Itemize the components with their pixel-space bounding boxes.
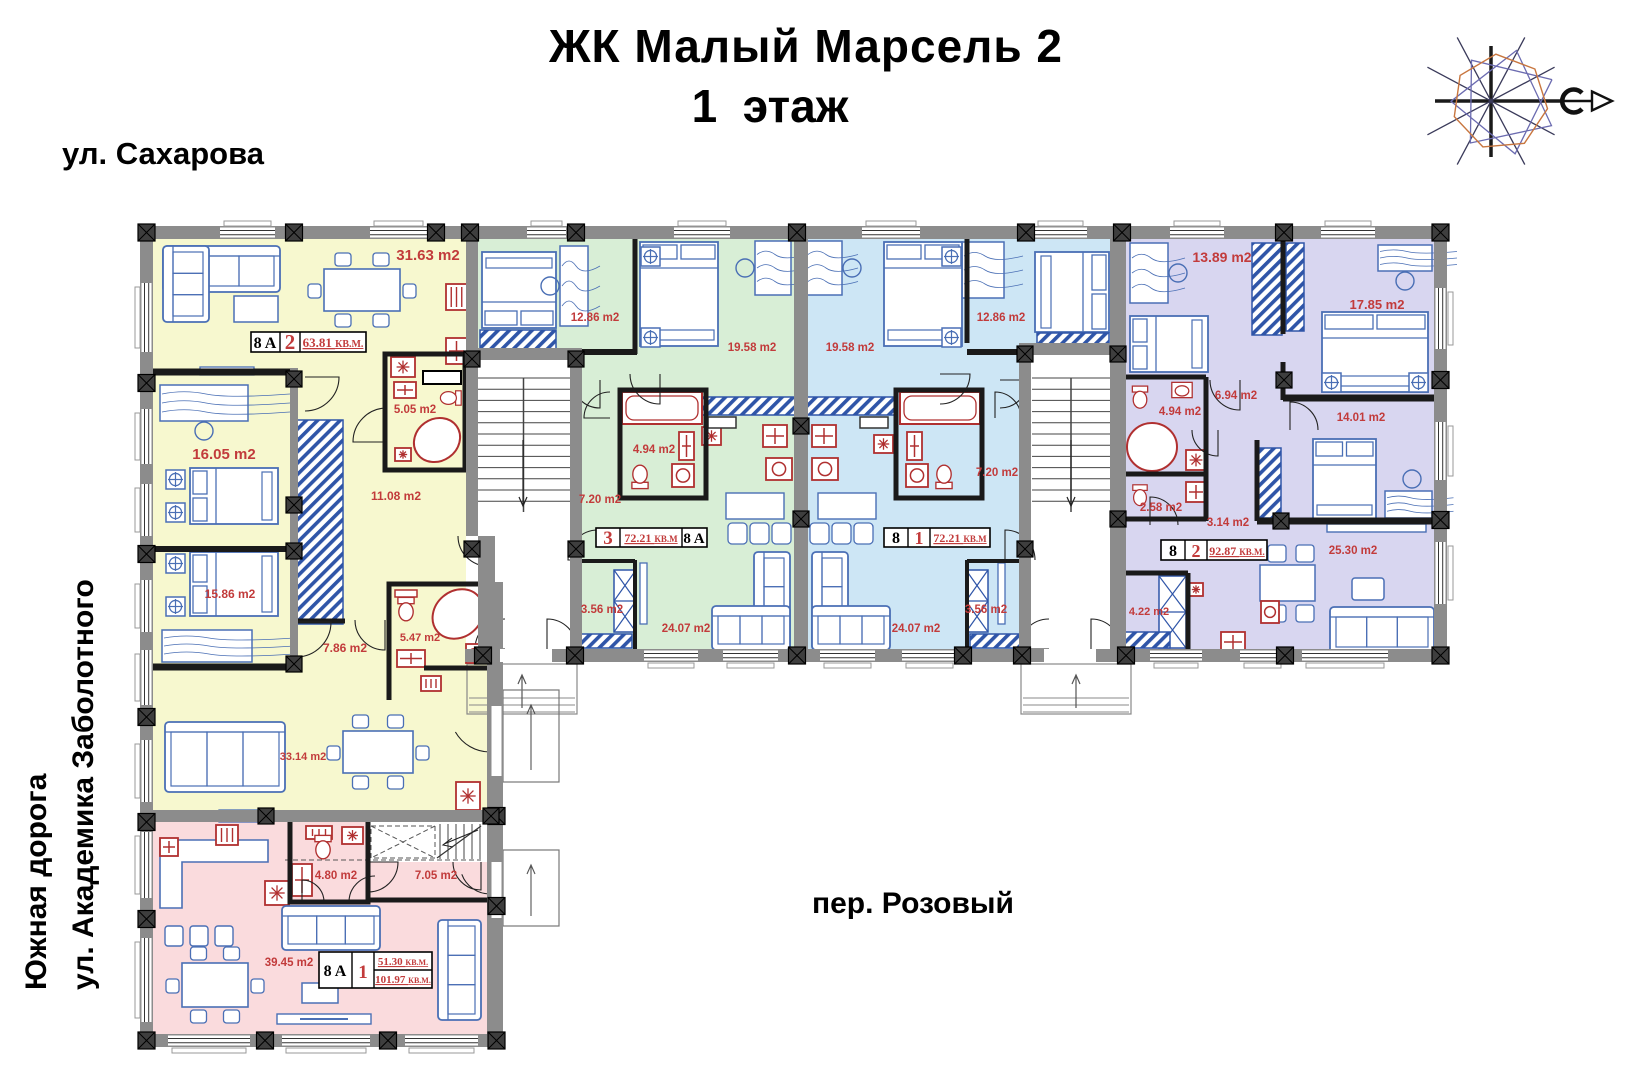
- svg-text:8 A: 8 A: [324, 963, 347, 980]
- svg-text:4.80 m2: 4.80 m2: [315, 870, 357, 882]
- svg-text:8 A: 8 A: [683, 531, 704, 547]
- svg-text:12.86 m2: 12.86 m2: [571, 312, 620, 324]
- svg-text:ЖК Малый Марсель 2: ЖК Малый Марсель 2: [548, 20, 1063, 72]
- svg-text:3.56 m2: 3.56 m2: [581, 604, 623, 616]
- svg-text:7.05 m2: 7.05 m2: [415, 870, 457, 882]
- svg-text:33.14 m2: 33.14 m2: [280, 751, 326, 763]
- svg-text:7.86 m2: 7.86 m2: [323, 641, 367, 655]
- svg-text:Южная дорога: Южная дорога: [20, 773, 53, 990]
- svg-text:19.58 m2: 19.58 m2: [826, 342, 875, 354]
- svg-text:ул. Сахарова: ул. Сахарова: [62, 136, 265, 171]
- svg-text:4.22 m2: 4.22 m2: [1129, 606, 1169, 618]
- svg-text:19.58 m2: 19.58 m2: [728, 342, 777, 354]
- svg-text:72.21 КВ.М: 72.21 КВ.М: [933, 531, 987, 545]
- svg-text:39.45 m2: 39.45 m2: [265, 957, 314, 969]
- svg-text:5.05 m2: 5.05 m2: [394, 404, 436, 416]
- svg-text:24.07 m2: 24.07 m2: [662, 623, 711, 635]
- svg-text:2.58 m2: 2.58 m2: [1140, 502, 1182, 514]
- svg-text:72.21 КВ.М: 72.21 КВ.М: [624, 531, 678, 545]
- svg-text:17.85 m2: 17.85 m2: [1350, 297, 1405, 312]
- svg-text:6.94 m2: 6.94 m2: [1215, 390, 1257, 402]
- svg-text:3.14 m2: 3.14 m2: [1207, 517, 1249, 529]
- svg-text:1: 1: [358, 962, 368, 983]
- svg-text:2: 2: [1192, 541, 1201, 561]
- svg-text:4.94 m2: 4.94 m2: [1159, 406, 1201, 418]
- svg-text:24.07 m2: 24.07 m2: [892, 623, 941, 635]
- svg-text:16.05 m2: 16.05 m2: [192, 446, 255, 463]
- svg-text:5.47 m2: 5.47 m2: [400, 632, 440, 644]
- svg-text:25.30 m2: 25.30 m2: [1329, 545, 1378, 557]
- svg-text:8 A: 8 A: [254, 335, 277, 352]
- svg-text:14.01 m2: 14.01 m2: [1337, 412, 1386, 424]
- svg-text:92.87 КВ.М.: 92.87 КВ.М.: [1209, 544, 1265, 558]
- svg-text:8: 8: [892, 530, 900, 547]
- svg-text:7.20 m2: 7.20 m2: [976, 467, 1018, 479]
- svg-text:2: 2: [285, 330, 296, 354]
- svg-text:15.86 m2: 15.86 m2: [205, 587, 256, 601]
- svg-text:101.97 КВ.М.: 101.97 КВ.М.: [375, 974, 431, 986]
- svg-text:7.20 m2: 7.20 m2: [579, 494, 621, 506]
- svg-text:4.94 m2: 4.94 m2: [633, 444, 675, 456]
- svg-text:51.30 КВ.М.: 51.30 КВ.М.: [378, 956, 428, 968]
- svg-text:пер. Розовый: пер. Розовый: [812, 887, 1014, 920]
- svg-text:12.86 m2: 12.86 m2: [977, 312, 1026, 324]
- svg-text:1: 1: [915, 528, 924, 548]
- svg-text:1 этаж: 1 этаж: [692, 80, 849, 132]
- svg-text:3.56 m2: 3.56 m2: [965, 604, 1007, 616]
- svg-text:11.08 m2: 11.08 m2: [371, 489, 421, 503]
- svg-text:ул. Академика Заболотного: ул. Академика Заболотного: [67, 579, 100, 990]
- svg-text:8: 8: [1169, 543, 1177, 560]
- svg-text:31.63 m2: 31.63 m2: [396, 247, 459, 264]
- svg-text:13.89 m2: 13.89 m2: [1192, 249, 1251, 265]
- svg-text:3: 3: [603, 528, 613, 549]
